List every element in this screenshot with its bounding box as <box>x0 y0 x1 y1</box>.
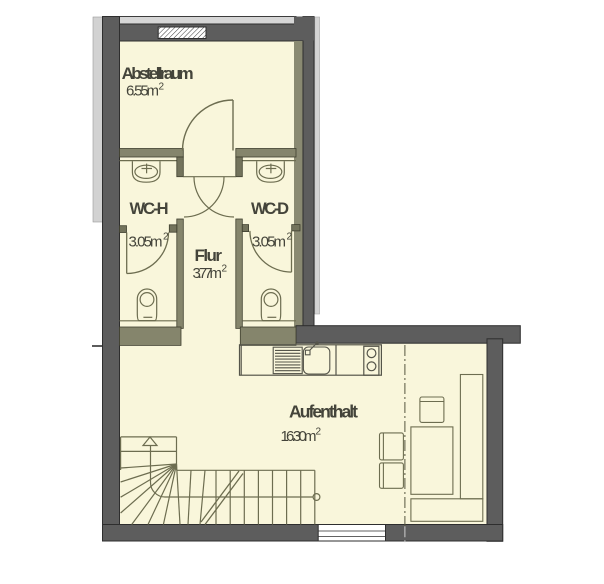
svg-text:Flur: Flur <box>195 246 223 265</box>
svg-text:WC-D: WC-D <box>251 200 289 218</box>
svg-text:2: 2 <box>163 232 169 243</box>
svg-text:2: 2 <box>222 264 228 275</box>
svg-text:Abstellraum: Abstellraum <box>122 64 194 83</box>
svg-text:2: 2 <box>287 232 293 243</box>
svg-text:3.05m: 3.05m <box>252 233 286 250</box>
svg-text:6.55m: 6.55m <box>126 83 159 100</box>
svg-text:3.77m: 3.77m <box>193 265 223 282</box>
svg-text:16.30m: 16.30m <box>281 428 317 445</box>
svg-text:2: 2 <box>316 427 322 438</box>
svg-text:Aufenthalt: Aufenthalt <box>289 402 358 422</box>
svg-text:2: 2 <box>159 82 165 93</box>
svg-text:3.05m: 3.05m <box>129 233 163 250</box>
svg-text:WC-H: WC-H <box>130 200 169 218</box>
